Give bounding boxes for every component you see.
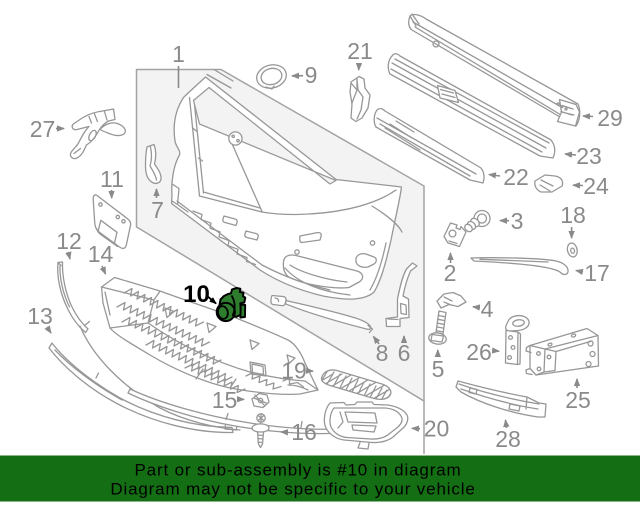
svg-text:15: 15 (212, 387, 238, 413)
svg-text:1: 1 (172, 41, 185, 67)
svg-text:29: 29 (597, 105, 623, 131)
svg-text:2: 2 (444, 260, 457, 286)
svg-text:24: 24 (583, 173, 609, 199)
svg-text:21: 21 (347, 38, 373, 64)
svg-text:28: 28 (495, 426, 521, 452)
svg-text:9: 9 (305, 62, 318, 88)
svg-text:19: 19 (281, 358, 307, 384)
svg-text:18: 18 (560, 202, 586, 228)
svg-text:16: 16 (291, 419, 317, 445)
svg-text:25: 25 (565, 387, 591, 413)
svg-text:26: 26 (466, 339, 492, 365)
svg-text:17: 17 (584, 260, 610, 286)
svg-text:10: 10 (183, 281, 210, 308)
svg-text:5: 5 (432, 356, 445, 382)
svg-text:23: 23 (576, 143, 602, 169)
svg-text:3: 3 (511, 208, 524, 234)
svg-text:27: 27 (30, 116, 56, 142)
svg-text:7: 7 (151, 197, 164, 223)
svg-text:4: 4 (481, 296, 494, 322)
svg-text:11: 11 (100, 166, 124, 192)
svg-text:13: 13 (27, 303, 53, 329)
svg-text:12: 12 (56, 228, 82, 254)
svg-text:22: 22 (503, 164, 529, 190)
svg-text:6: 6 (398, 340, 411, 366)
svg-text:20: 20 (424, 416, 450, 442)
svg-text:14: 14 (88, 241, 114, 267)
svg-text:Part or sub-assembly is #10 in: Part or sub-assembly is #10 in diagram (134, 461, 461, 480)
svg-text:Diagram may not be specific to: Diagram may not be specific to your vehi… (110, 480, 475, 499)
svg-text:8: 8 (376, 340, 389, 366)
